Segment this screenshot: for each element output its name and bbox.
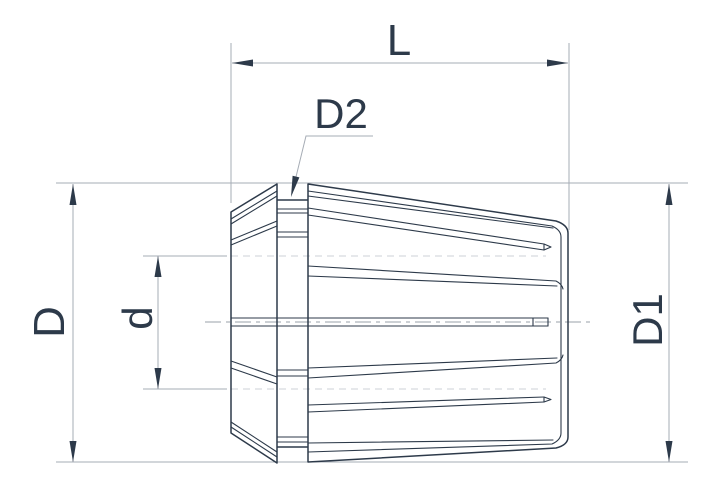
collet-rear-cap (231, 184, 277, 463)
dim-groove-diameter: D2 (291, 90, 373, 197)
rear-cap-slot-line (231, 221, 277, 240)
body-inner-edge (308, 191, 561, 452)
label-big-end-diameter: D (25, 306, 74, 338)
rear-cap-outline (231, 184, 277, 463)
dim-overall-length: L (232, 16, 568, 67)
collet-dimension-drawing: L D2 D d D1 (0, 0, 724, 488)
groove-leader-line (292, 136, 373, 194)
collet-groove (277, 200, 308, 447)
rear-cap-slot-line (231, 361, 277, 377)
dimension-arrowhead-up (666, 184, 673, 205)
dim-big-end-diameter: D (25, 184, 77, 462)
dimension-arrowhead-left (232, 60, 253, 67)
rear-cap-slot-line (231, 226, 277, 245)
rear-cap-edge (231, 427, 277, 457)
label-groove-diameter: D2 (314, 90, 368, 137)
dimension-arrowhead-up (70, 184, 77, 205)
leader-arrowhead (291, 176, 299, 197)
dim-body-diameter: D1 (624, 184, 673, 462)
dim-bore-diameter: d (114, 256, 162, 389)
label-overall-length: L (387, 16, 411, 65)
rear-cap-slot-line (231, 368, 277, 384)
body-outline (308, 184, 568, 462)
rear-cap-edge (231, 196, 277, 224)
dimension-arrowhead-up (155, 256, 162, 277)
label-body-diameter: D1 (624, 293, 671, 347)
collet-body (231, 184, 568, 462)
slot-line (308, 276, 557, 286)
slot-tip (544, 244, 551, 250)
slot-tip (544, 397, 551, 402)
extension-lines (56, 43, 688, 462)
rear-cap-edge (231, 191, 277, 219)
dimension-arrowhead-right (547, 60, 568, 67)
dimension-arrowhead-down (155, 368, 162, 389)
body-surface-line (308, 440, 553, 443)
slot-line (308, 358, 557, 368)
label-bore-diameter: d (114, 306, 161, 329)
dimension-arrowhead-down (70, 441, 77, 462)
dimension-arrowhead-down (666, 441, 673, 462)
body-surface-line (308, 196, 553, 228)
drawing-canvas: L D2 D d D1 (0, 0, 724, 488)
